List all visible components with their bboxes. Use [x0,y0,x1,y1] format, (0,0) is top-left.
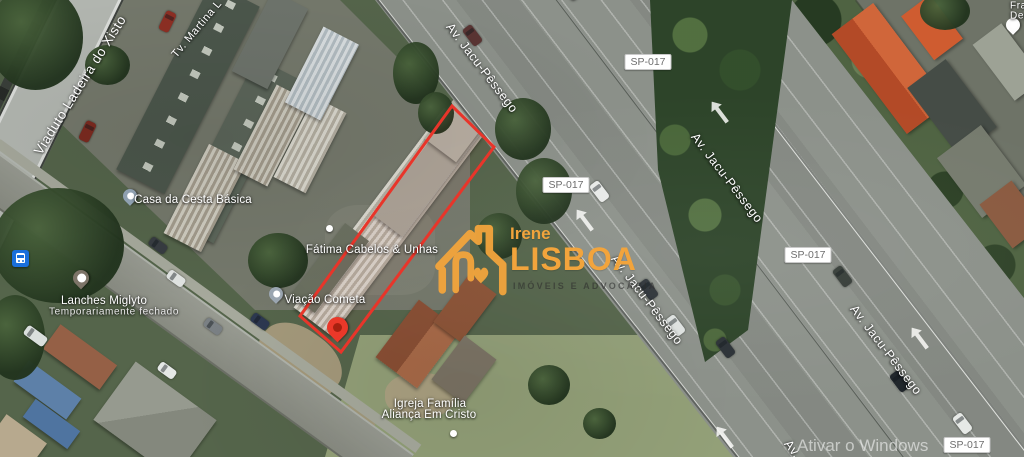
fork-knife-icon [79,275,84,281]
poi-label-casa[interactable]: Casa da Cesta Básica [134,194,252,206]
route-badge-sp017: SP-017 [624,54,671,70]
poi-label-fatima[interactable]: Fátima Cabelos & Unhas [306,244,438,256]
satellite-map[interactable]: Viaduto Ladeira do Xisto Tv. Martina L A… [0,0,1024,457]
bus-station-icon[interactable] [12,250,29,267]
bus-glyph [16,253,25,263]
igreja-poi-dot[interactable] [450,430,457,437]
route-badge-sp017: SP-017 [542,177,589,193]
poi-label-viacao[interactable]: Viação Cometa [284,294,365,306]
poi-label-igreja-line2[interactable]: Aliança Em Cristo [382,409,477,421]
fatima-poi-dot[interactable] [326,225,333,232]
poi-label-lanches[interactable]: Lanches Miglyto [61,295,147,307]
agency-logo-tagline: IMÓVEIS E ADVOCACIA [513,281,657,291]
agency-logo-line2: LISBOA [510,241,637,278]
agency-house-logo-icon [428,216,512,300]
poi-label-fraternity-line2[interactable]: Degra [1010,11,1024,22]
windows-activation-watermark: Ativar o Windows [797,436,928,456]
route-badge-sp017: SP-017 [943,437,990,453]
poi-status-lanches: Temporariamente fechado [49,307,179,318]
route-badge-sp017: SP-017 [784,247,831,263]
